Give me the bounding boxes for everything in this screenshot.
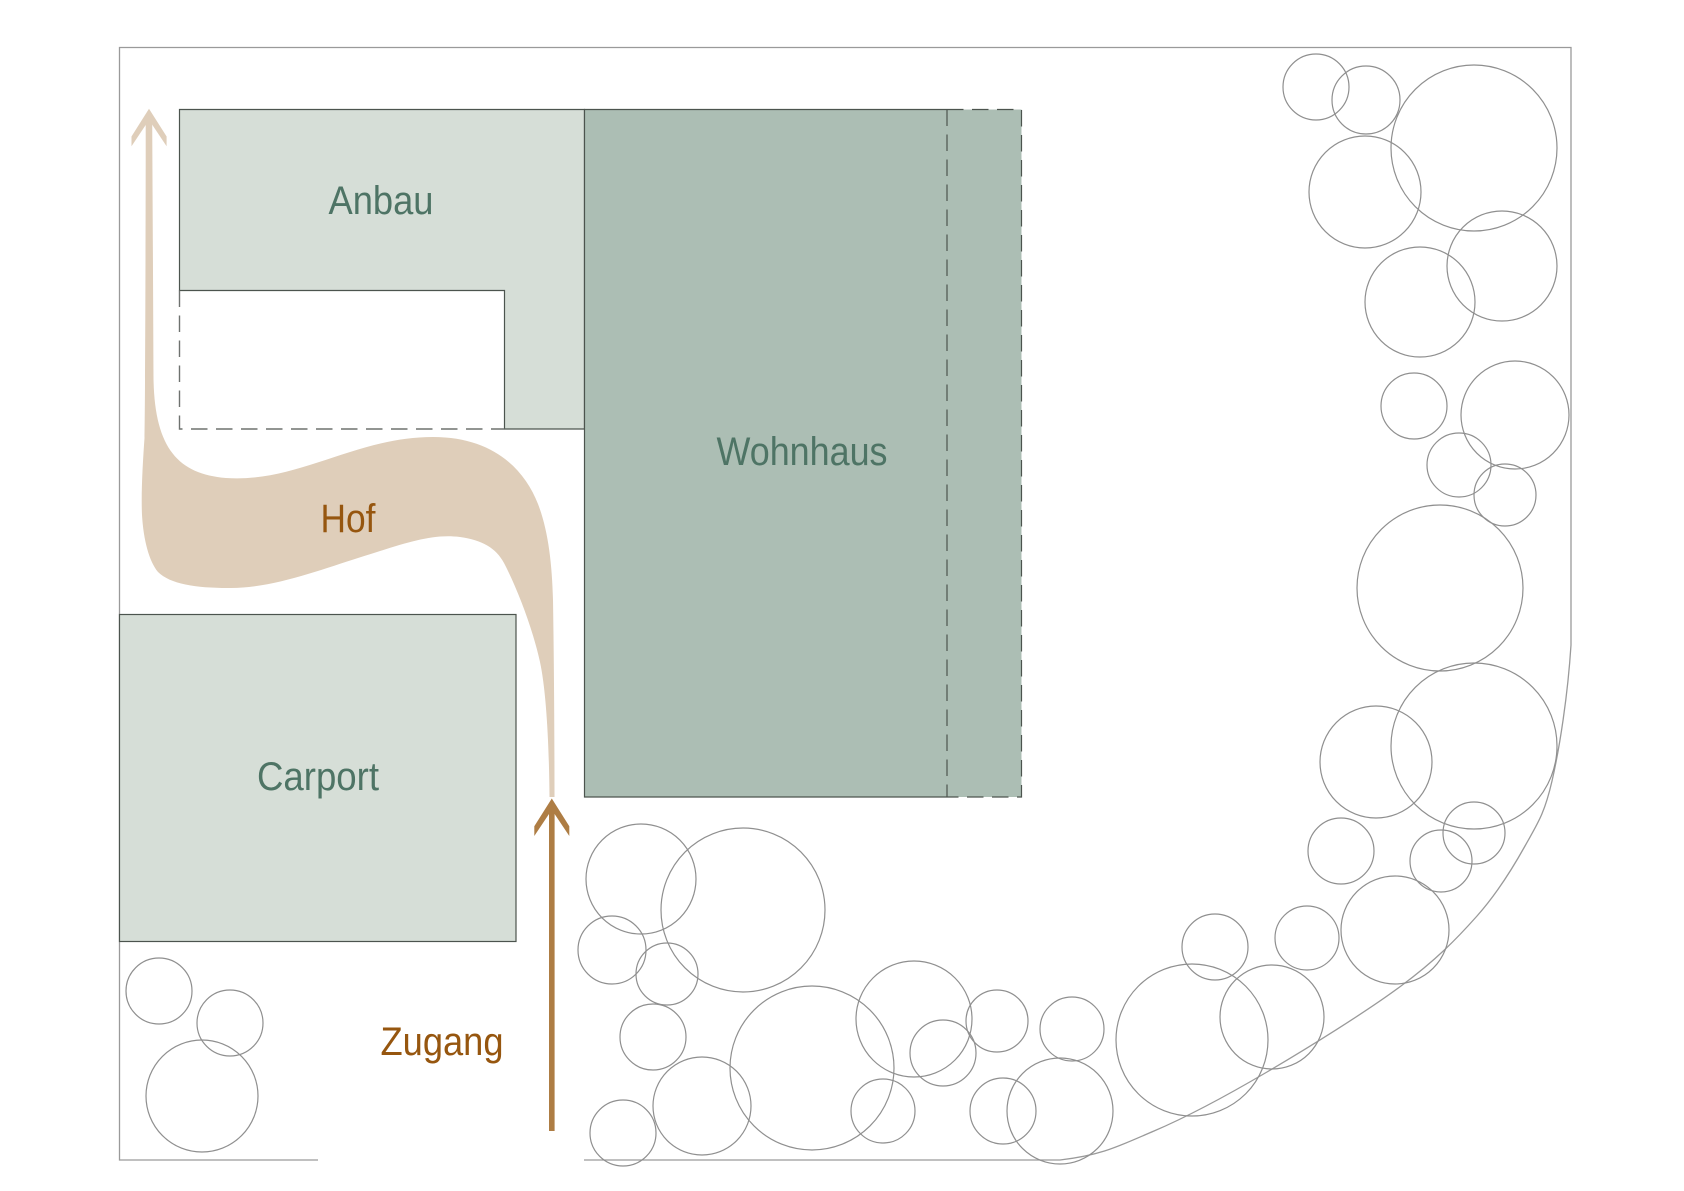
svg-text:Anbau: Anbau (329, 179, 434, 223)
svg-text:Carport: Carport (257, 755, 379, 799)
svg-text:Wohnhaus: Wohnhaus (717, 430, 888, 474)
svg-text:Hof: Hof (321, 497, 377, 541)
svg-text:Zugang: Zugang (381, 1020, 504, 1064)
